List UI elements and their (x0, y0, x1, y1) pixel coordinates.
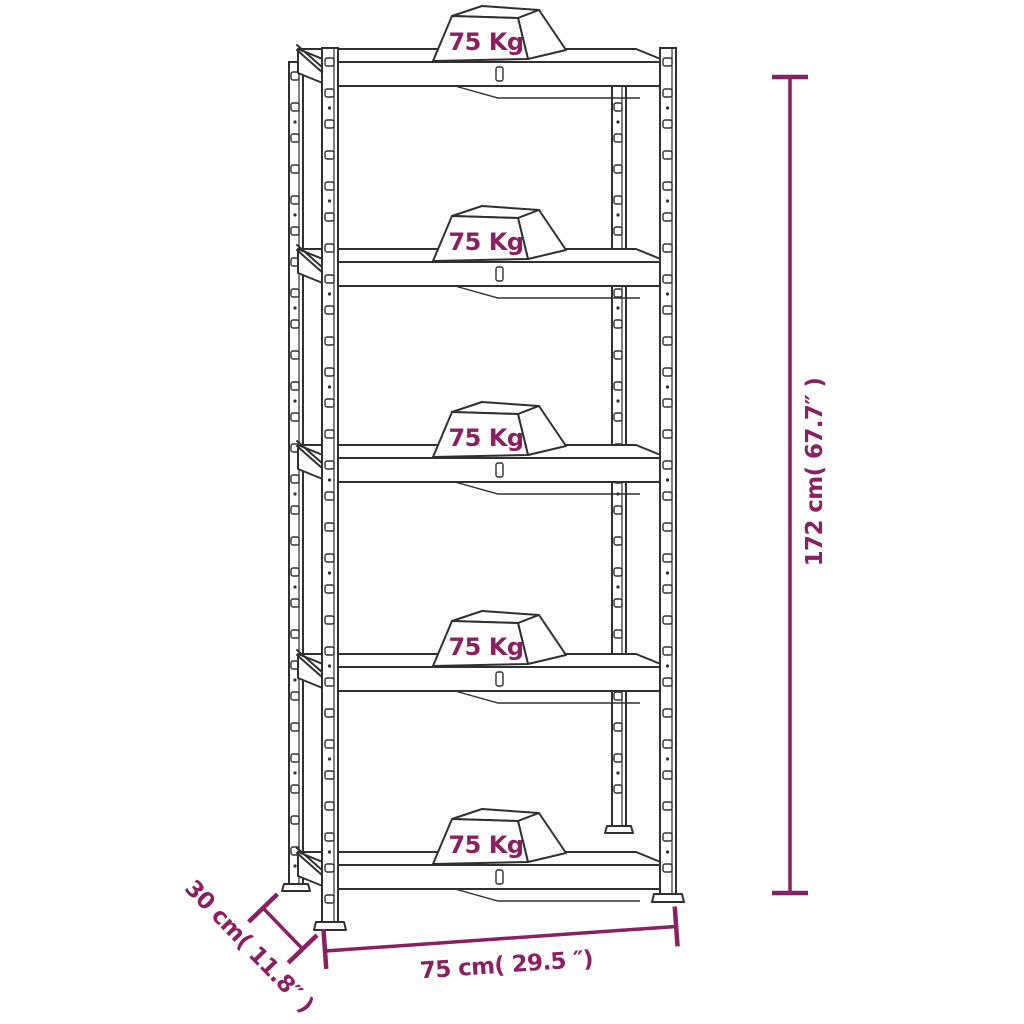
slot-hole (291, 754, 299, 762)
slot-hole (325, 709, 334, 717)
rivet-dot (616, 120, 619, 123)
slot-hole (614, 227, 622, 235)
slot-hole (614, 723, 622, 731)
slot-hole (291, 351, 299, 359)
slot-hole (325, 802, 334, 810)
shelving-rack-drawing: 75 Kg 75 Kg 75 Kg 75 Kg 75 Kg 172 cm( 67… (0, 0, 1024, 1024)
slot-hole (614, 599, 622, 607)
slot-hole (325, 554, 334, 562)
slot-hole (291, 568, 299, 576)
slot-hole (325, 58, 334, 66)
dimension-cap (675, 906, 678, 946)
slot-hole (663, 647, 672, 655)
slot-hole (325, 771, 334, 779)
slot-hole (291, 506, 299, 514)
slot-hole (663, 740, 672, 748)
slot-hole (325, 833, 334, 841)
slot-hole (663, 833, 672, 841)
rivet-dot (328, 292, 331, 295)
slot-hole (291, 785, 299, 793)
rivet-dot (666, 664, 669, 667)
rivet-dot (328, 385, 331, 388)
slot-hole (325, 120, 334, 128)
rivet-dot (666, 292, 669, 295)
slot-hole (291, 630, 299, 638)
slot-hole (325, 523, 334, 531)
slot-hole (291, 134, 299, 142)
slot-hole (291, 382, 299, 390)
slot-hole (663, 337, 672, 345)
post-foot (652, 894, 684, 902)
slot-hole (663, 430, 672, 438)
rivet-dot (616, 771, 619, 774)
slot-hole (291, 475, 299, 483)
slot-hole (325, 492, 334, 500)
width-dimension-label: 75 cm( 29.5 ″) (419, 946, 594, 984)
slot-hole (291, 320, 299, 328)
slot-hole (614, 506, 622, 514)
rivet-dot (328, 664, 331, 667)
rivet-dot (328, 757, 331, 760)
slot-hole (663, 58, 672, 66)
rivet-dot (666, 199, 669, 202)
post-foot (282, 884, 310, 891)
slot-hole (614, 289, 622, 297)
slot-hole (325, 740, 334, 748)
slot-hole (325, 306, 334, 314)
slot-hole (291, 227, 299, 235)
slot-hole (663, 213, 672, 221)
shelf-load-label-5: 75 Kg (448, 831, 523, 859)
slot-hole (291, 599, 299, 607)
slot-hole (291, 103, 299, 111)
slot-hole (291, 537, 299, 545)
rivet-dot (616, 399, 619, 402)
slot-hole (614, 320, 622, 328)
slot-hole (325, 89, 334, 97)
post-back-left (282, 62, 310, 891)
slot-hole (614, 196, 622, 204)
rivet-dot (328, 571, 331, 574)
slot-hole (663, 771, 672, 779)
slot-hole (663, 120, 672, 128)
slot-hole (325, 430, 334, 438)
slot-hole (614, 103, 622, 111)
slot-hole (291, 196, 299, 204)
slot-hole (614, 134, 622, 142)
slot-hole (614, 568, 622, 576)
slot-hole (663, 678, 672, 686)
shelf-load-label-4: 75 Kg (448, 633, 523, 661)
slot-hole (325, 337, 334, 345)
depth-dimension-label: 30 cm( 11.8″ ) (179, 875, 318, 1018)
slot-hole (614, 351, 622, 359)
product-dimension-diagram: 75 Kg 75 Kg 75 Kg 75 Kg 75 Kg 172 cm( 67… (0, 0, 1024, 1024)
slot-hole (614, 413, 622, 421)
slot-hole (325, 864, 334, 872)
slot-hole (291, 723, 299, 731)
slot-hole (325, 213, 334, 221)
slot-hole (663, 306, 672, 314)
slot-hole (614, 785, 622, 793)
slot-hole (325, 182, 334, 190)
rivet-dot (293, 678, 296, 681)
rivet-dot (616, 213, 619, 216)
slot-hole (614, 165, 622, 173)
rivet-dot (293, 864, 296, 867)
width-dimension: 75 cm( 29.5 ″) (323, 904, 678, 990)
slot-hole (291, 816, 299, 824)
slot-hole (325, 461, 334, 469)
rivet-dot (293, 306, 296, 309)
slot-hole (325, 895, 334, 903)
slot-hole (325, 678, 334, 686)
slot-hole (325, 647, 334, 655)
slot-hole (663, 399, 672, 407)
rivet-dot (666, 106, 669, 109)
post-foot (314, 922, 346, 930)
slot-hole (663, 864, 672, 872)
slot-hole (291, 692, 299, 700)
post-front-left (314, 48, 346, 930)
rivet-dot (666, 571, 669, 574)
rivet-dot (328, 106, 331, 109)
slot-hole (325, 585, 334, 593)
rivet-dot (293, 771, 296, 774)
slot-hole (614, 630, 622, 638)
rivet-dot (293, 399, 296, 402)
height-dimension: 172 cm( 67.7″ ) (772, 77, 828, 893)
post-foot (605, 826, 633, 833)
rivet-dot (293, 585, 296, 588)
rivet-dot (666, 850, 669, 853)
slot-hole (614, 382, 622, 390)
rivet-dot (666, 385, 669, 388)
shelf-load-label-3: 75 Kg (448, 424, 523, 452)
slot-hole (663, 709, 672, 717)
slot-hole (291, 413, 299, 421)
rivet-dot (293, 120, 296, 123)
slot-hole (663, 182, 672, 190)
rivet-dot (666, 478, 669, 481)
shelf-load-label-2: 75 Kg (448, 228, 523, 256)
slot-hole (663, 461, 672, 469)
slot-hole (663, 89, 672, 97)
rivet-dot (616, 585, 619, 588)
dimension-cap (323, 929, 326, 969)
width-dimension-line (325, 926, 676, 951)
depth-dimension-line (263, 908, 303, 949)
slot-hole (325, 151, 334, 159)
slot-hole (663, 523, 672, 531)
slot-hole (663, 275, 672, 283)
slot-hole (663, 368, 672, 376)
slot-hole (291, 289, 299, 297)
slot-hole (614, 537, 622, 545)
shelf-load-label-1: 75 Kg (448, 28, 523, 56)
slot-hole (325, 244, 334, 252)
rivet-dot (616, 306, 619, 309)
slot-hole (325, 616, 334, 624)
slot-hole (663, 492, 672, 500)
rivet-dot (666, 757, 669, 760)
slot-hole (663, 802, 672, 810)
slot-hole (614, 692, 622, 700)
slot-hole (663, 616, 672, 624)
rivet-dot (293, 213, 296, 216)
rivet-dot (328, 199, 331, 202)
rivet-dot (293, 492, 296, 495)
height-dimension-label: 172 cm( 67.7″ ) (802, 378, 828, 567)
rivet-dot (328, 850, 331, 853)
slot-hole (663, 585, 672, 593)
slot-hole (291, 165, 299, 173)
slot-hole (325, 368, 334, 376)
rivet-dot (328, 478, 331, 481)
slot-hole (614, 754, 622, 762)
slot-hole (663, 151, 672, 159)
slot-hole (325, 275, 334, 283)
slot-hole (663, 554, 672, 562)
slot-hole (663, 244, 672, 252)
slot-hole (325, 399, 334, 407)
